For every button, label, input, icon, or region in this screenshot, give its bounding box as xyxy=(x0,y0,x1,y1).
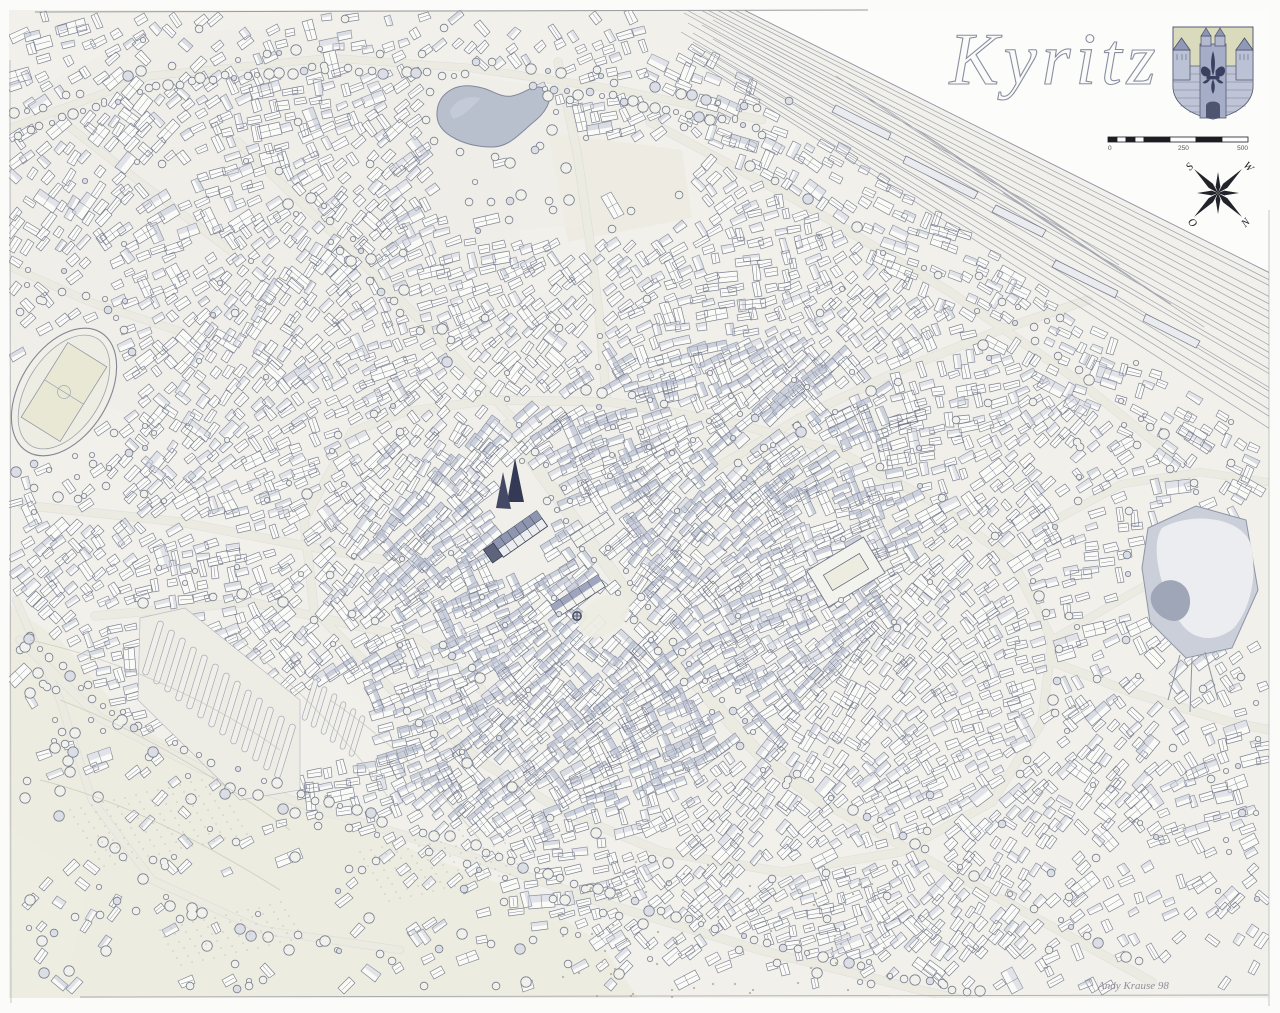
svg-text:250: 250 xyxy=(1178,145,1189,152)
svg-text:0: 0 xyxy=(1108,145,1112,152)
svg-text:Kyritz: Kyritz xyxy=(949,19,1161,101)
svg-text:Andy Krause 98: Andy Krause 98 xyxy=(1097,980,1169,992)
svg-text:500: 500 xyxy=(1237,145,1248,152)
